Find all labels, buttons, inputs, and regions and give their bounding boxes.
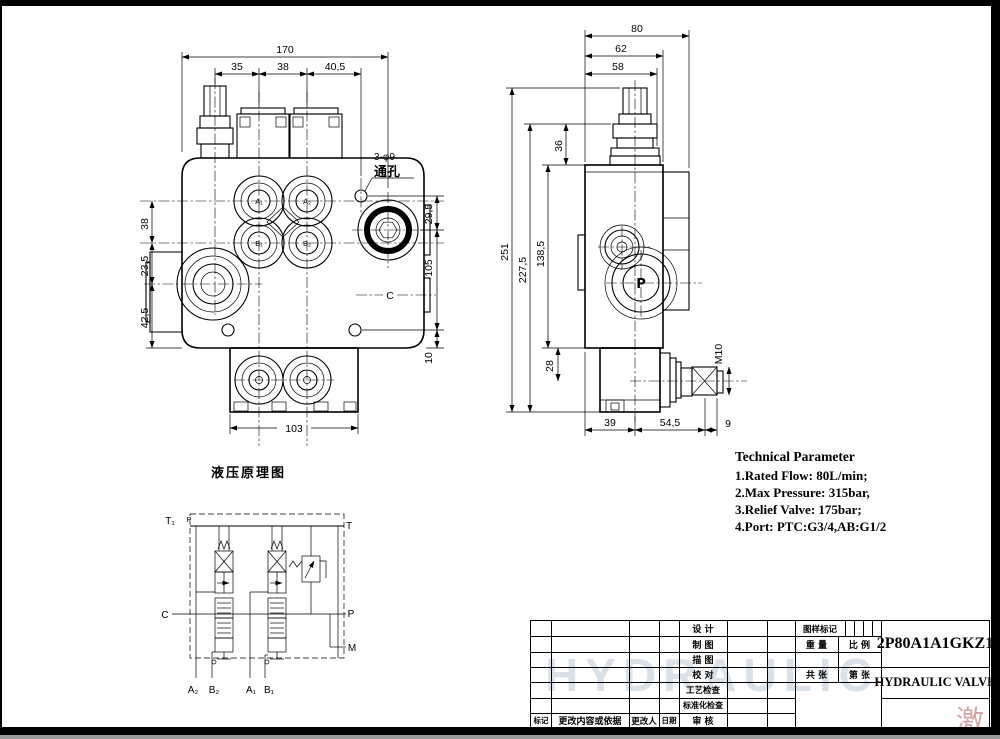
model-number: 2P80A1A1GKZ1	[881, 621, 989, 667]
dim-251: 251	[499, 243, 511, 261]
side-body-outline	[585, 165, 663, 348]
label-c: C	[161, 610, 168, 621]
row-proofread: 校 对	[679, 667, 727, 682]
bolt-hole-right	[349, 324, 361, 336]
front-view: A₁ A₂ B₁ B₂	[139, 44, 444, 446]
dim-105: 105	[423, 259, 435, 277]
dim-62: 62	[615, 43, 627, 55]
dim-103: 103	[285, 423, 303, 435]
title-block: 设 计 制 图 描 图 校 对 工艺检查 标准化检查 审 核 标记 更改内容或依…	[530, 620, 990, 729]
drawing-sheet: HYDRAULIC 激	[0, 0, 1000, 739]
label-p-top: P	[186, 515, 191, 524]
product-name: HYDRAULIC VALVE	[881, 667, 989, 698]
bottom-edge-gray	[0, 735, 1000, 739]
spool-valve-symbol-1	[265, 526, 286, 664]
right-edge-bar	[991, 0, 1000, 739]
dim-54-5: 54,5	[660, 417, 681, 429]
tech-title: Technical Parameter	[735, 449, 997, 465]
tech-line-2: 2.Max Pressure: 315bar,	[735, 484, 997, 501]
label-t: T	[346, 521, 352, 532]
dim-40-5: 40,5	[325, 61, 346, 73]
label-t1: T₁	[165, 516, 175, 527]
dim-38-top: 38	[277, 61, 289, 73]
dim-10: 10	[423, 352, 435, 364]
field-weight: 重 量	[795, 636, 838, 652]
port-a1-label: A₁	[255, 197, 263, 206]
label-a1: A₁	[246, 685, 257, 696]
row-review: 审 核	[679, 713, 727, 728]
field-sheets-total: 共 张	[795, 667, 838, 682]
port-p-label: P	[636, 277, 646, 292]
dim-42-5: 42,5	[139, 308, 151, 329]
dim-35: 35	[231, 61, 243, 73]
label-b1: B₁	[264, 685, 275, 696]
bottom-edge-bar	[0, 727, 1000, 735]
port-b2-label: B₂	[303, 239, 311, 248]
dim-38-left: 38	[139, 218, 151, 230]
thread-m10-label: M10	[713, 344, 725, 365]
label-a2: A₂	[188, 685, 199, 696]
row-design: 设 计	[679, 621, 727, 636]
schematic-title: 液压原理图	[211, 465, 286, 481]
col-date: 日期	[659, 713, 679, 728]
col-mark: 标记	[531, 713, 551, 728]
row-drafting: 制 图	[679, 636, 727, 652]
dim-170: 170	[276, 44, 294, 56]
field-drawing-mark: 图样标记	[795, 621, 845, 636]
row-process-check: 工艺检查	[679, 682, 727, 698]
col-change-content: 更改内容或依据	[551, 713, 629, 728]
dim-28: 28	[544, 360, 556, 372]
dim-36: 36	[553, 140, 565, 152]
hole-note-line2: 通孔	[374, 164, 400, 180]
dim-138-5: 138,5	[535, 241, 547, 267]
dim-29-5: 29,5	[423, 204, 435, 225]
section-cap-1	[237, 108, 289, 158]
col-changed-by: 更改人	[629, 713, 659, 728]
dim-23-5: 23,5	[139, 256, 151, 277]
dim-227-5: 227,5	[517, 257, 529, 283]
label-b2: B₂	[209, 685, 220, 696]
hydraulic-schematic: 液压原理图	[161, 465, 356, 696]
left-edge-bar	[0, 0, 2, 739]
side-view: P M10	[499, 23, 747, 436]
port-a2-label: A₂	[303, 197, 311, 206]
top-edge-bar	[0, 0, 1000, 6]
schematic-enclosure	[190, 514, 344, 658]
relief-valve-symbol	[289, 526, 326, 614]
port-b1-label: B₁	[255, 239, 263, 248]
dim-58: 58	[612, 61, 624, 73]
label-p-right: P	[348, 609, 355, 620]
row-standard-check: 标准化检查	[679, 698, 727, 713]
section-cap-2	[290, 108, 342, 158]
dim-39: 39	[604, 417, 616, 429]
tech-line-3: 3.Relief Valve: 175bar;	[735, 501, 997, 518]
technical-parameters: Technical Parameter 1.Rated Flow: 80L/mi…	[735, 449, 997, 535]
dim-9: 9	[725, 418, 731, 430]
field-scale: 比 例	[838, 636, 881, 652]
hole-note-line1: 3-φ9	[374, 152, 395, 163]
bolt-hole-left	[222, 324, 234, 336]
label-m: M	[348, 643, 356, 654]
tech-line-4: 4.Port: PTC:G3/4,AB:G1/2	[735, 518, 997, 535]
spool-valve-symbol-2	[212, 526, 233, 664]
port-c-label: C	[386, 290, 394, 302]
tech-line-1: 1.Rated Flow: 80L/min;	[735, 467, 997, 484]
dim-80: 80	[631, 23, 643, 35]
row-tracing: 描 图	[679, 652, 727, 667]
